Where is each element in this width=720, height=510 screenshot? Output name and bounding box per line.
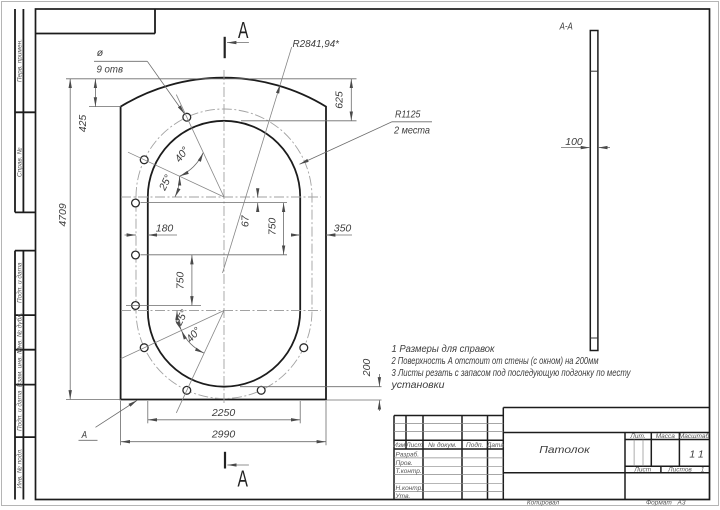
svg-text:А-А: А-А [559,20,573,31]
svg-text:установки: установки [390,379,444,391]
svg-text:2250: 2250 [211,407,236,419]
svg-text:Листов: Листов [667,467,692,474]
svg-text:Патолок: Патолок [539,444,591,456]
svg-text:Дата: Дата [486,442,505,449]
svg-text:Масштаб: Масштаб [679,432,710,440]
svg-text:200: 200 [361,359,373,378]
svg-text:Перв. примен.: Перв. примен. [17,39,24,82]
svg-text:750: 750 [175,272,187,290]
svg-text:Подп. и дата: Подп. и дата [16,390,24,431]
svg-text:750: 750 [267,218,279,236]
svg-text:Взам. инв. №: Взам. инв. № [17,347,24,387]
svg-text:2 Поверхность А отстоит от ст: 2 Поверхность А отстоит от стены (с окно… [391,355,599,367]
svg-text:2990: 2990 [211,429,236,441]
svg-text:Инв. № подл.: Инв. № подл. [16,448,24,489]
svg-text:ø: ø [97,47,104,59]
svg-text:2 места: 2 места [393,125,430,137]
svg-text:100: 100 [565,136,583,148]
svg-text:А: А [81,428,87,440]
svg-text:Пров.: Пров. [396,460,413,467]
svg-text:Лист: Лист [405,442,423,449]
svg-text:1: 1 [698,448,704,460]
svg-text:Т.контр.: Т.контр. [396,468,422,475]
svg-text:3 Листы резать с запасом под: 3 Листы резать с запасом под последующую… [392,367,632,379]
svg-text:Масса: Масса [656,433,676,440]
svg-text:425: 425 [77,115,89,133]
svg-text:350: 350 [334,223,352,235]
svg-text:Лит.: Лит. [629,433,645,440]
svg-text:А3: А3 [677,500,686,507]
svg-text:1: 1 [701,467,705,474]
svg-text:Лист: Лист [633,467,651,474]
svg-text:Разраб.: Разраб. [396,451,420,459]
svg-text:Н.контр.: Н.контр. [396,485,424,492]
svg-text:180: 180 [156,223,174,235]
svg-text:4709: 4709 [57,203,69,227]
svg-text:Инв. № дубл.: Инв. № дубл. [16,312,24,352]
svg-text:9 отв: 9 отв [97,63,124,75]
svg-text:R2841,94*: R2841,94* [293,38,340,50]
svg-text:Справ. №: Справ. № [17,148,24,178]
svg-text:А: А [238,18,249,44]
svg-text:67: 67 [240,214,252,227]
svg-text:R1125: R1125 [395,109,421,121]
svg-text:№ докум.: № докум. [428,441,457,449]
svg-text:Подп. и дата: Подп. и дата [16,262,24,303]
svg-text:Копировал: Копировал [527,500,560,507]
svg-text:Изм.: Изм. [393,442,407,449]
svg-text:Утв.: Утв. [395,493,411,500]
svg-text:Подп.: Подп. [466,441,483,449]
svg-text:1: 1 [689,448,695,460]
svg-text:1 Размеры для справок: 1 Размеры для справок [392,343,496,355]
svg-text:625: 625 [334,91,346,109]
svg-text:А: А [237,467,248,493]
svg-text:Формат: Формат [646,500,672,507]
